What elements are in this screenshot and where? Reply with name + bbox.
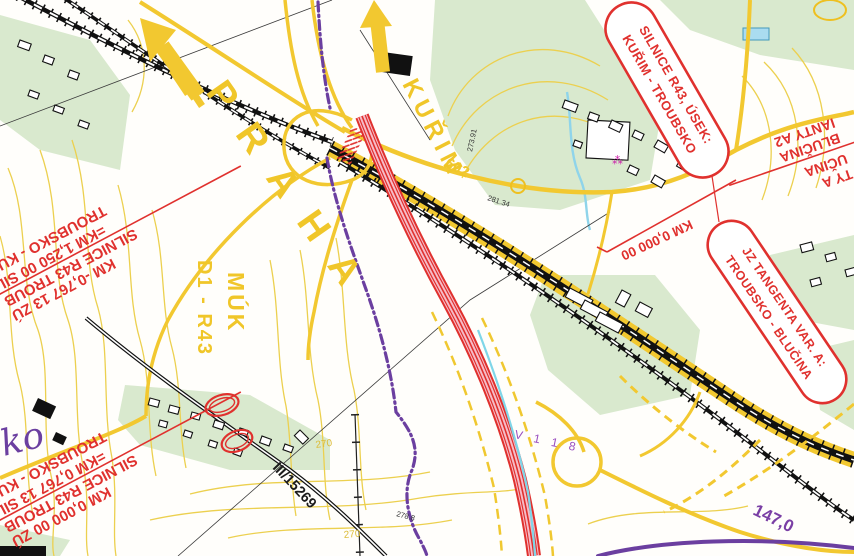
map-scan: PRAHA KUŘIM MÚK D1 - R43 602 270 270 III… bbox=[0, 0, 854, 556]
church-symbol: ⁂ bbox=[612, 155, 623, 167]
contour-label: 270 bbox=[315, 438, 333, 451]
cadastre-code-label: V 1 1 8 bbox=[513, 427, 580, 454]
kurim-arrow bbox=[360, 0, 392, 72]
place-name-fragment-troubsko: ko bbox=[0, 414, 48, 464]
spot-height: 278.8 bbox=[395, 509, 415, 523]
map-canvas: PRAHA KUŘIM MÚK D1 - R43 602 270 270 III… bbox=[0, 0, 854, 556]
d1-kilometer-marker: 147,0 bbox=[750, 501, 797, 537]
chainage-block-upper-left: KM -0,767 13 ZÚ SILNICE R43 TROUB =KM 1,… bbox=[0, 136, 257, 335]
interchange-label-muk: MÚK bbox=[223, 272, 250, 333]
interchange-label-d1-r43: D1 - R43 bbox=[193, 260, 215, 356]
contour-label: 270 bbox=[343, 529, 361, 541]
arrow-head bbox=[360, 0, 392, 28]
